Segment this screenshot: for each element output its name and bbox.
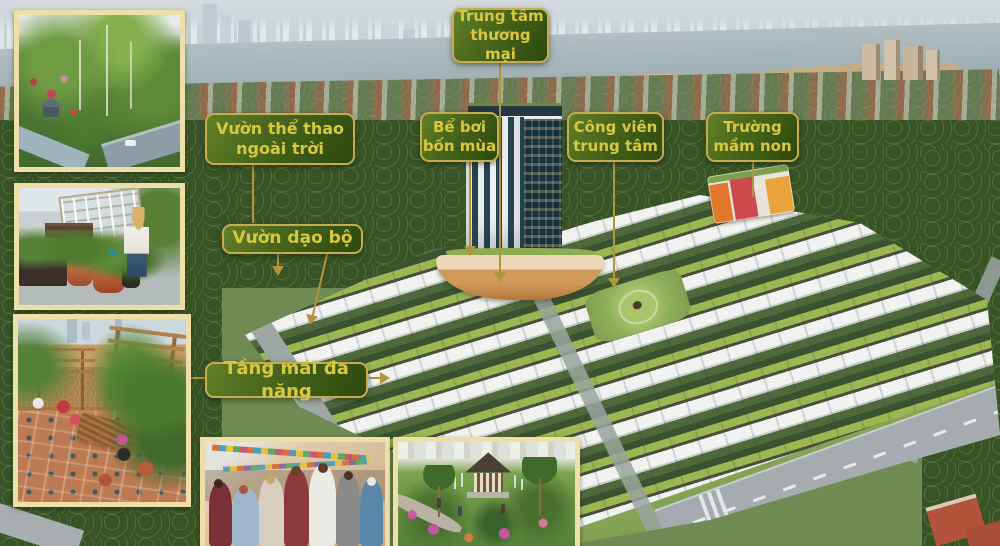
party-person <box>309 465 336 546</box>
park-visitor <box>501 504 505 514</box>
party-person <box>209 482 232 546</box>
callout-central-park-line1: Công viên <box>574 118 658 137</box>
leader-rooftop-right <box>369 377 380 379</box>
tower-face-right <box>524 119 562 256</box>
gardener-person <box>116 207 158 277</box>
callout-mall-line2: thương mại <box>454 26 547 64</box>
callout-walking-garden-label: Vườn dạo bộ <box>232 228 352 250</box>
watering-can <box>109 249 117 255</box>
callout-sports-garden-line2: ngoài trời <box>236 139 324 159</box>
leader-mall-arrow-icon <box>494 272 506 282</box>
apartment-block <box>884 40 900 80</box>
callout-rooftop-label: Tầng mái đa năng <box>207 357 366 403</box>
leader-walking-garden-a-arrow-icon <box>272 266 284 276</box>
leader-sports-garden <box>252 165 254 223</box>
callout-central-park-line2: trung tâm <box>573 137 658 156</box>
party-person-head <box>367 477 376 486</box>
inset-terrace-photo <box>13 314 191 507</box>
callout-pool: Bể bơi bốn mùa <box>420 112 499 162</box>
party-person <box>284 469 309 546</box>
apartment-block <box>903 46 923 80</box>
callout-walking-garden: Vườn dạo bộ <box>222 224 363 254</box>
inset-park-gazebo-photo <box>393 437 580 546</box>
party-person <box>232 488 259 546</box>
inset-park-walkway-photo <box>14 10 185 172</box>
party-person <box>336 473 359 546</box>
inset-rooftop-garden-photo <box>14 183 185 310</box>
callout-central-park: Công viên trung tâm <box>567 112 664 162</box>
park-visitor <box>437 498 441 508</box>
callout-kindergarten-line1: Trường <box>723 118 781 137</box>
callout-mall-line1: Trung tâm <box>457 7 543 26</box>
callout-sports-garden: Vườn thể thao ngoài trời <box>205 113 355 165</box>
callout-kindergarten: Trường mầm non <box>706 112 799 162</box>
flower-beds <box>398 442 575 546</box>
callout-kindergarten-line2: mầm non <box>713 137 791 156</box>
leader-kindergarten <box>752 162 754 197</box>
party-person-head <box>266 475 275 484</box>
callout-mall: Trung tâm thương mại <box>452 8 549 63</box>
leader-pool <box>469 162 471 246</box>
flower-pots <box>18 319 186 502</box>
party-person <box>360 479 383 546</box>
leader-mall <box>499 62 501 272</box>
party-person <box>259 477 284 546</box>
leader-central-park-arrow-icon <box>608 278 620 288</box>
apartment-block <box>926 50 940 80</box>
leader-walking-garden-a <box>277 254 279 266</box>
leader-pool-arrow-icon <box>464 246 476 256</box>
callout-pool-line1: Bể bơi <box>433 118 486 137</box>
inset-rooftop-party-photo <box>200 437 390 546</box>
apartment-block <box>862 44 880 80</box>
leader-rooftop-arrow-icon <box>380 372 390 384</box>
callout-sports-garden-line1: Vườn thể thao <box>216 119 344 139</box>
leader-central-park <box>613 162 615 278</box>
callout-rooftop: Tầng mái đa năng <box>205 362 368 398</box>
zebra-crossing <box>698 487 739 541</box>
park-visitor <box>458 506 462 516</box>
estate-aerial-poster: Trung tâm thương mại Vườn thể thao ngoài… <box>0 0 1000 546</box>
flower-clusters <box>19 15 180 167</box>
party-person-head <box>214 479 223 488</box>
callout-pool-line2: bốn mùa <box>423 137 496 156</box>
